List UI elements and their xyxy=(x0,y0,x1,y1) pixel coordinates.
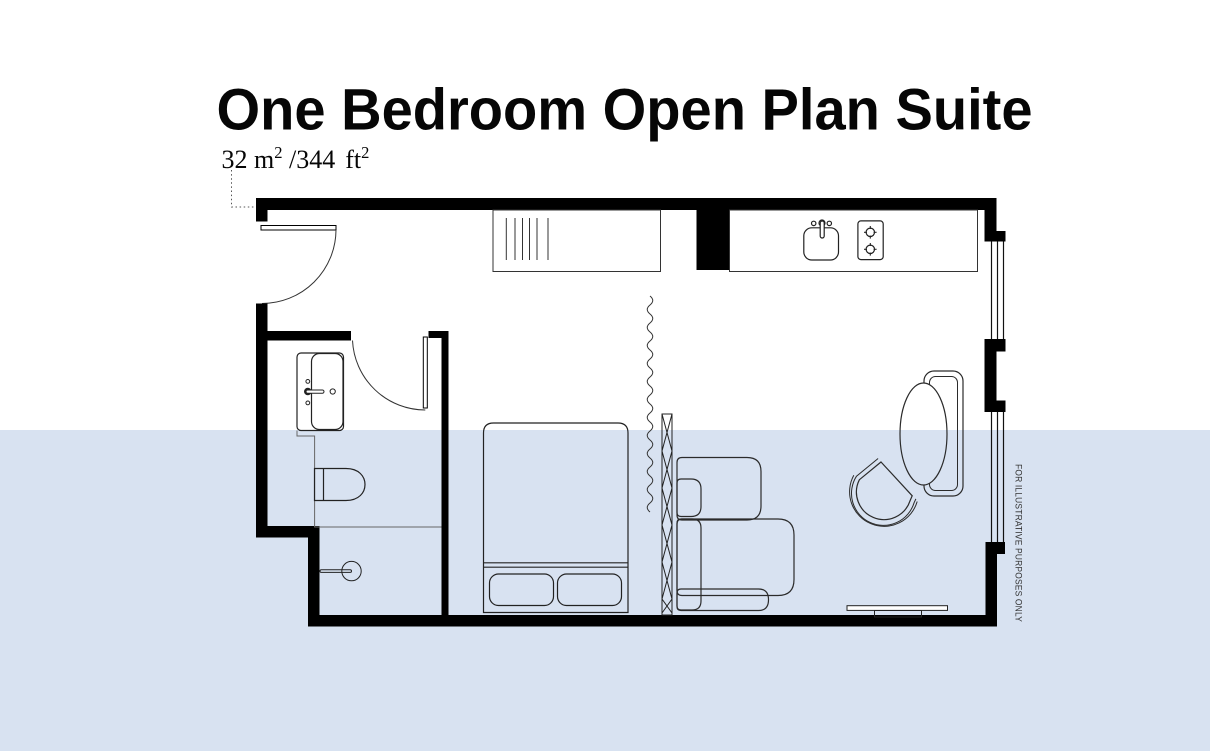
svg-text:One Bedroom Open Plan Suite: One Bedroom Open Plan Suite xyxy=(217,78,1033,143)
svg-text:32 m2 /344ft2: 32 m2 /344ft2 xyxy=(222,143,370,174)
svg-text:FOR ILLUSTRATIVE PURPOSES ONLY: FOR ILLUSTRATIVE PURPOSES ONLY xyxy=(1014,464,1024,622)
